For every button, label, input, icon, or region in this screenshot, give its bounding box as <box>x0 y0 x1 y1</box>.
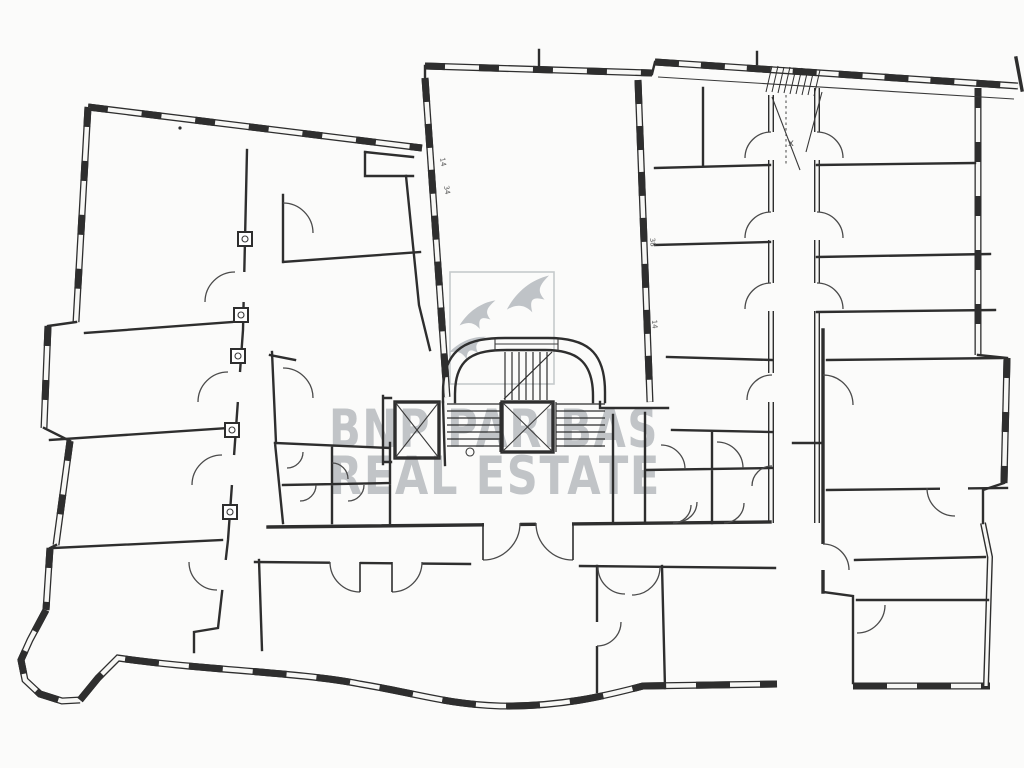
floor-plan-document: BNP PARIBAS REAL ESTATE <box>0 0 1024 768</box>
svg-text:14: 14 <box>650 319 659 329</box>
svg-text:34: 34 <box>442 185 452 196</box>
stair-treads-upper <box>504 352 552 400</box>
svg-text:38: 38 <box>648 237 657 247</box>
bnp-paribas-watermark: BNP PARIBAS REAL ESTATE <box>329 272 661 507</box>
exterior-walls <box>21 50 1022 706</box>
corridor-x-mark: x <box>788 138 794 149</box>
dimension-marks: 14 34 38 14 <box>438 157 659 330</box>
floor-plan-svg: BNP PARIBAS REAL ESTATE <box>0 0 1024 768</box>
watermark-line2: REAL ESTATE <box>329 446 661 507</box>
interior-walls <box>50 88 1007 692</box>
door-swings <box>189 132 955 646</box>
corridor-walls: x <box>766 66 822 523</box>
svg-text:14: 14 <box>438 157 448 168</box>
